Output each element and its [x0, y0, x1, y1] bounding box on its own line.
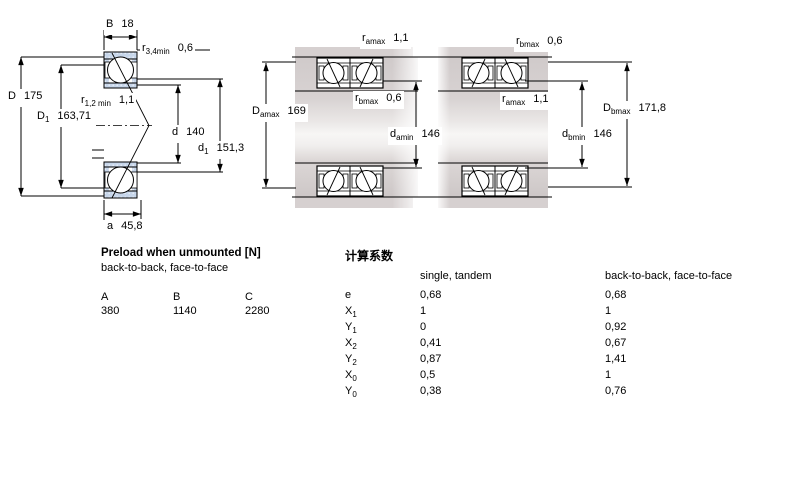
- dim-a: [104, 200, 141, 220]
- bearing-outer-section-bottom: [104, 162, 137, 198]
- factors-row-Y2: Y20,871,41: [345, 351, 732, 367]
- dim-d: [137, 85, 181, 163]
- dim-label-Damax: Damax169: [250, 104, 308, 122]
- factors-col-single-tandem: single, tandem: [420, 270, 605, 282]
- dim-label-ramax-a: ramax1,1: [360, 31, 411, 49]
- factors-row-X1: X111: [345, 303, 732, 319]
- factors-row-X0: X00,51: [345, 367, 732, 383]
- dim-label-d1: d1151,3: [196, 141, 246, 159]
- dim-label-dbmin: dbmin146: [560, 127, 614, 145]
- preload-table-subtitle: back-to-back, face-to-face: [101, 262, 317, 274]
- preload-table: Preload when unmounted [N] back-to-back,…: [101, 247, 317, 317]
- preload-value-B: 1140: [173, 305, 245, 317]
- calculation-factors-table: 计算系数 single, tandemback-to-back, face-to…: [345, 247, 732, 399]
- dim-label-rbmax-b: rbmax0,6: [514, 34, 565, 52]
- preload-table-values: 38011402280: [101, 305, 317, 317]
- preload-col-A: A: [101, 291, 173, 303]
- preload-col-C: C: [245, 291, 317, 303]
- bearing-datasheet-page: B18 r3,4min0,6 D175 r1,2 min1,1 D1163,71…: [0, 0, 800, 500]
- dim-label-a: a45,8: [105, 219, 145, 237]
- preload-value-C: 2280: [245, 305, 317, 317]
- dim-label-B: B18: [104, 17, 136, 35]
- housing-band-bottom: [438, 197, 548, 208]
- factors-row-Y1: Y100,92: [345, 319, 732, 335]
- bearing-pair: [462, 166, 528, 196]
- bearing-pair: [317, 166, 383, 196]
- factors-table-title: 计算系数: [345, 247, 732, 264]
- preload-table-title: Preload when unmounted [N]: [101, 247, 317, 259]
- factors-table-header: single, tandemback-to-back, face-to-face: [345, 270, 732, 282]
- factors-row-e: e0,680,68: [345, 287, 732, 303]
- factors-table-body: e0,680,68 X111 Y100,92 X20,410,67 Y20,87…: [345, 287, 732, 399]
- dim-label-ramax-b: ramax1,1: [500, 92, 551, 110]
- preload-table-header: ABC: [101, 291, 317, 303]
- bearing-pair: [317, 58, 383, 88]
- factors-row-Y0: Y00,380,76: [345, 383, 732, 399]
- dim-label-D: D175: [6, 89, 44, 107]
- dim-Damax: [262, 62, 296, 188]
- preload-col-B: B: [173, 291, 245, 303]
- preload-value-A: 380: [101, 305, 173, 317]
- bearing-pair: [462, 58, 528, 88]
- dim-label-r34: r3,4min0,6: [140, 41, 195, 59]
- dim-label-D1: D1163,71: [35, 109, 93, 127]
- factors-row-X2: X20,410,67: [345, 335, 732, 351]
- factors-col-back-to-back: back-to-back, face-to-face: [605, 270, 732, 282]
- dim-label-rbmax-a: rbmax0,6: [353, 91, 404, 109]
- bearing-ball: [108, 167, 134, 193]
- dim-label-Dbmax: Dbmax171,8: [601, 101, 668, 119]
- dim-label-damin: damin146: [388, 127, 442, 145]
